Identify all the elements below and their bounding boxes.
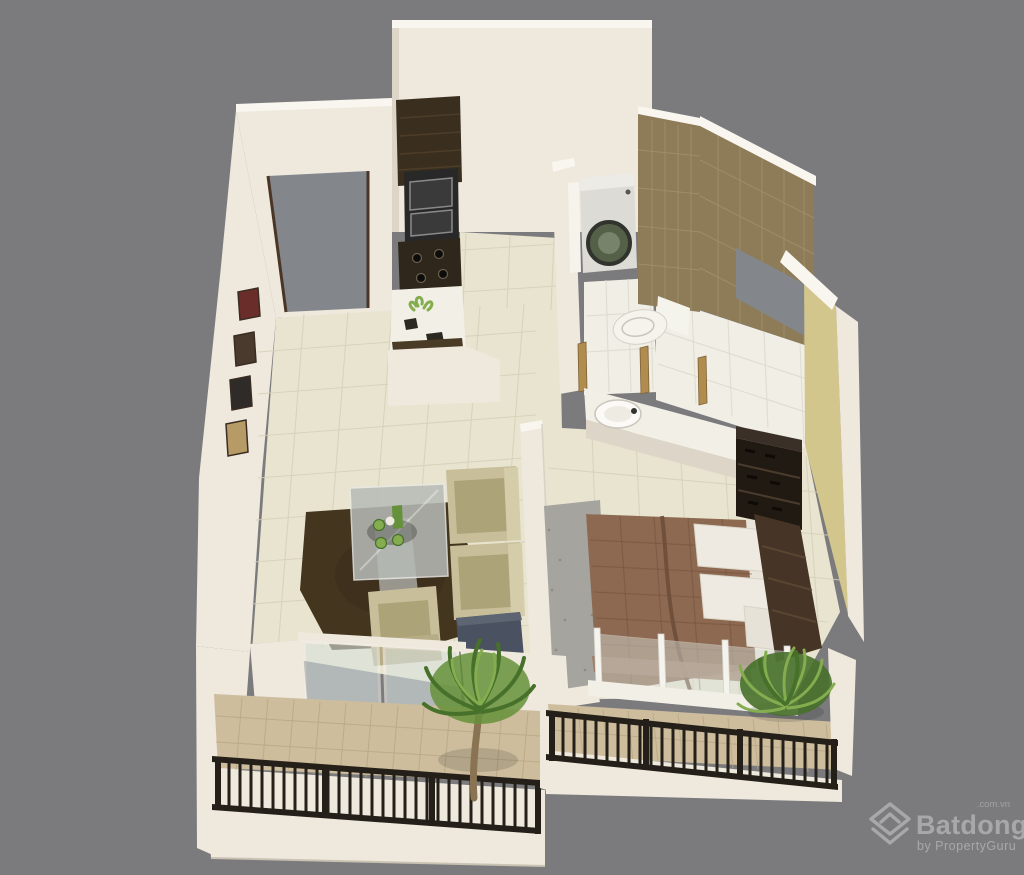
counter-bowl-1 <box>404 318 418 330</box>
armchair-1-back <box>504 467 521 541</box>
white-bowl <box>386 517 395 526</box>
watermark-brand: Batdongsan <box>916 810 1024 840</box>
oven-window-upper <box>410 178 452 210</box>
burner-2 <box>435 250 444 259</box>
armchair-2-seat <box>458 554 511 610</box>
armchair-2-back <box>508 543 525 617</box>
watermark-suffix: .com.vn <box>977 799 1010 810</box>
picture-frame-1 <box>238 288 260 320</box>
wardrobe-shelf <box>736 438 802 530</box>
green-bottle <box>392 505 403 529</box>
kitchen-back-wall-top <box>392 20 652 28</box>
burner-1 <box>413 254 422 263</box>
watermark-byline: by PropertyGuru <box>917 839 1016 853</box>
washbasin-inner <box>604 406 632 422</box>
picture-frame-4 <box>226 420 248 456</box>
picture-frame-2 <box>234 332 256 366</box>
armchair-1-seat <box>454 478 507 534</box>
oven-window-lower <box>411 210 452 236</box>
washer-niche-post <box>568 182 581 273</box>
washing-machine-door-glass <box>598 232 620 254</box>
floorplan-render: Batdongsan .com.vn by PropertyGuru <box>0 0 1024 875</box>
utility-door-jamb <box>698 356 707 405</box>
washer-dial <box>626 190 631 195</box>
bathroom-door-jamb-2 <box>640 346 649 394</box>
burner-3 <box>417 274 426 283</box>
bathroom-door-jamb-1 <box>578 342 587 392</box>
picture-frame-3 <box>230 376 252 410</box>
kitchen-base-block <box>388 346 500 406</box>
burner-4 <box>439 270 448 279</box>
green-cup-3 <box>376 538 387 549</box>
sliding-door-pane-1 <box>304 642 380 706</box>
floorplan-svg: Batdongsan .com.vn by PropertyGuru <box>0 0 1024 875</box>
green-cup-2 <box>393 535 404 546</box>
green-cup-1 <box>374 520 385 531</box>
faucet <box>631 408 637 414</box>
